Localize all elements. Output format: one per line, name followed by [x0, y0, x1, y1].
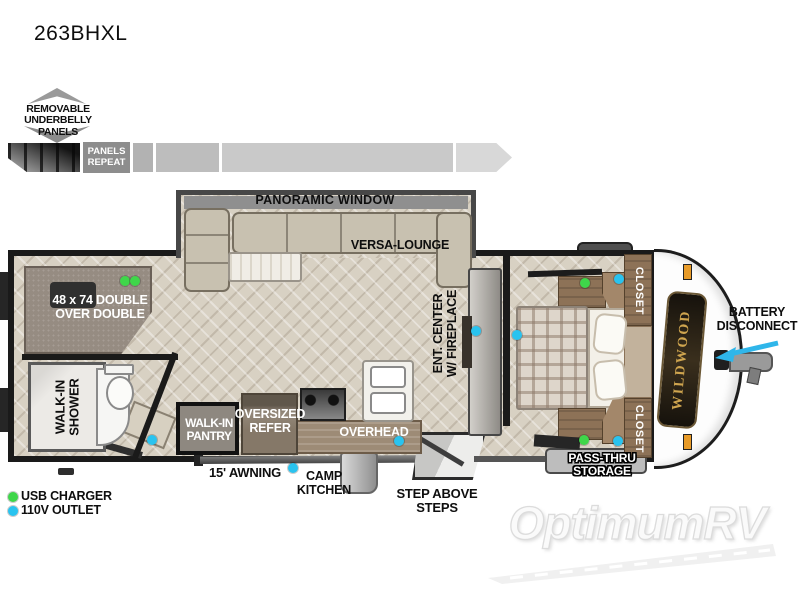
outlet-110v-dot: [394, 436, 404, 446]
oversized-refer-label: OVERSIZED REFER: [228, 408, 312, 435]
legend-outlet-dot: [8, 506, 18, 516]
outlet-110v-dot: [288, 463, 298, 473]
bunk-label: 48 x 74 DOUBLE OVER DOUBLE: [30, 294, 170, 321]
panel-segment-3: [222, 143, 453, 172]
outlet-110v-dot: [147, 435, 157, 445]
outlet-110v-dot: [512, 330, 522, 340]
legend-usb-label: USB CHARGER: [21, 490, 141, 504]
underbelly-up-arrow-icon: [28, 88, 86, 104]
usb-charger-dot: [580, 278, 590, 288]
brand-label: WILDWOOD: [671, 309, 694, 411]
closet-top-label: CLOSET: [632, 267, 644, 315]
outlet-110v-dot: [471, 326, 481, 336]
dinette-table: [228, 252, 302, 282]
closet-top-label-wrap: CLOSET: [626, 258, 650, 324]
clearance-light-top: [683, 264, 692, 280]
outlet-110v-dot: [613, 436, 623, 446]
bed-blanket: [516, 306, 588, 410]
lounge-sofa-left: [184, 208, 230, 292]
legend-usb-dot: [8, 492, 18, 502]
bed-pillow-2: [592, 358, 628, 401]
awning-label: 15' AWNING: [198, 466, 292, 480]
panels-repeat-badge: PANELS REPEAT: [83, 142, 130, 173]
panel-segment-1: [133, 143, 153, 172]
wardrobe-middle: [624, 326, 652, 398]
closet-bottom-label-wrap: CLOSET: [626, 400, 650, 458]
battery-disconnect-label: BATTERY DISCONNECT: [712, 306, 800, 333]
panel-dark-segment: [8, 143, 80, 172]
ent-center-label: ENT. CENTER W/ FIREPLACE: [433, 289, 460, 376]
usb-charger-dot: [130, 276, 140, 286]
panels-repeat-label: PANELS REPEAT: [83, 147, 130, 168]
walk-in-shower-label: WALK-IN SHOWER: [54, 378, 82, 435]
underbelly-callout: REMOVABLE UNDERBELLY PANELS: [8, 104, 108, 138]
camp-kitchen-label: CAMP KITCHEN: [286, 470, 362, 497]
clearance-light-bottom: [683, 434, 692, 450]
walk-in-shower-label-wrap: WALK-IN SHOWER: [22, 360, 114, 454]
panel-segment-2: [156, 143, 219, 172]
overhead-label: OVERHEAD: [330, 426, 418, 440]
floorplan-page: 263BHXL REMOVABLE UNDERBELLY PANELS PANE…: [0, 0, 800, 600]
rear-stabilizer-foot: [58, 468, 74, 475]
outlet-110v-dot: [614, 274, 624, 284]
closet-bottom-label: CLOSET: [632, 405, 644, 453]
usb-charger-dot: [120, 276, 130, 286]
versa-lounge-label: VERSA-LOUNGE: [338, 239, 462, 253]
page-title: 263BHXL: [34, 22, 174, 45]
pass-thru-storage-label: PASS-THRU STORAGE: [556, 452, 648, 478]
usb-charger-dot: [579, 435, 589, 445]
step-above-steps-label: STEP ABOVE STEPS: [376, 487, 498, 515]
legend-outlet-label: 110V OUTLET: [21, 504, 141, 518]
bedroom-wall: [503, 254, 510, 426]
storage-bar: [474, 456, 548, 462]
hitch-jack-foot: [746, 367, 761, 385]
bed-pillow-1: [592, 312, 628, 355]
battery-arrow-icon: [712, 336, 784, 364]
watermark-logo: OptimumRV: [482, 500, 792, 546]
panel-arrow-segment: [456, 143, 512, 172]
panoramic-window-label: PANORAMIC WINDOW: [218, 194, 432, 208]
